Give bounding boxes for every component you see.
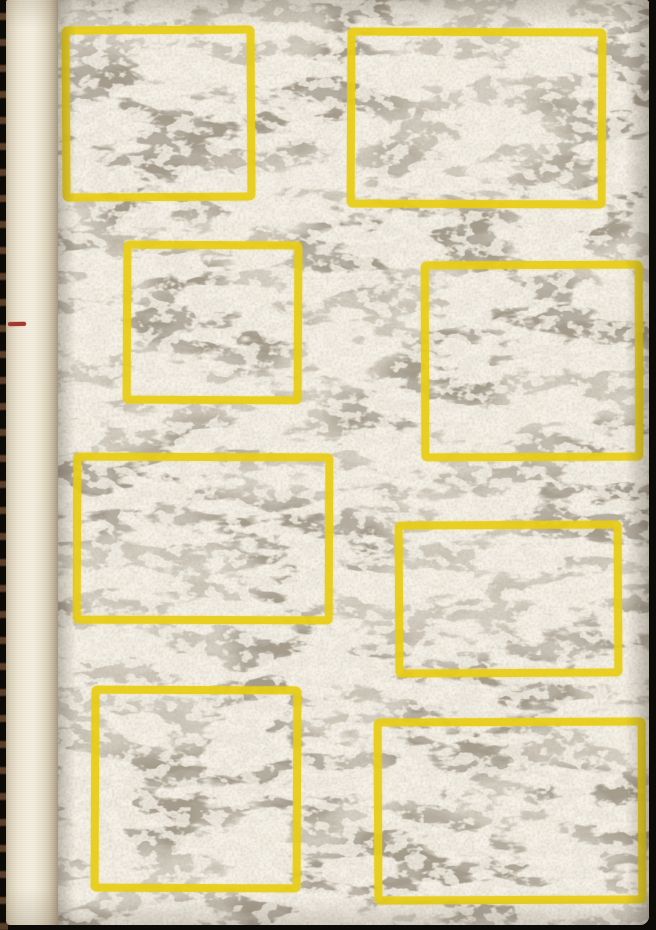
book-spine xyxy=(6,0,58,925)
yellow-rectangle-top-right xyxy=(347,27,607,208)
front-cover xyxy=(58,0,649,925)
spine-cloth-texture xyxy=(6,0,58,925)
yellow-rectangle-bottom-right xyxy=(374,717,647,904)
yellow-rectangle-center-left xyxy=(73,453,334,625)
yellow-rectangle-mid-left xyxy=(123,241,303,405)
book xyxy=(6,0,649,925)
yellow-rectangle-bottom-left xyxy=(91,686,302,893)
yellow-rectangle-mid-right xyxy=(421,261,644,462)
book-cover-photo xyxy=(0,0,656,930)
spine-red-mark xyxy=(8,322,26,326)
yellow-rectangle-top-left xyxy=(61,25,255,201)
yellow-rectangle-center-right xyxy=(395,520,623,677)
